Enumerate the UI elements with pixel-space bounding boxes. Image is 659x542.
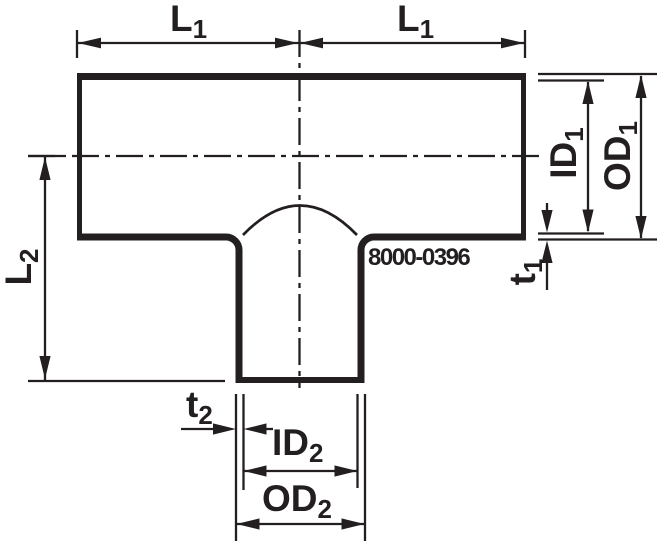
arrowhead-up	[39, 157, 50, 180]
arrowhead-right	[342, 518, 365, 529]
dimension-l1-right: L1	[299, 0, 525, 58]
label-l1-left: L1	[170, 0, 207, 44]
tee-fitting-outline	[77, 73, 526, 380]
arrowhead-left	[244, 423, 267, 434]
arrowhead-right	[501, 38, 524, 49]
arrowhead-right	[275, 38, 298, 49]
arrowhead-down	[582, 210, 593, 233]
label-od2: OD2	[262, 478, 332, 524]
label-t2: t2	[186, 384, 213, 430]
dimension-od2: OD2	[237, 478, 365, 530]
run-pipe-bottom-left-edge-branch-left-wall	[77, 237, 239, 379]
arrowhead-down	[39, 356, 50, 379]
part-number: 8000-0396	[368, 244, 470, 271]
label-id1: ID1	[543, 127, 589, 178]
arrowhead-down	[541, 210, 552, 233]
label-t1: t1	[502, 259, 548, 286]
dimension-t1: t1	[502, 203, 553, 290]
label-l2: L2	[0, 248, 44, 285]
arrowhead-left	[244, 465, 267, 476]
arrowhead-left	[237, 518, 260, 529]
label-id2: ID2	[272, 422, 323, 468]
arrowhead-right	[213, 423, 236, 434]
centerlines	[28, 30, 543, 388]
arrowhead-down	[635, 216, 646, 239]
label-od1: OD1	[597, 121, 643, 191]
arrowhead-up	[582, 81, 593, 104]
drawing-canvas: L1 L1 L2 ID1	[0, 0, 659, 542]
dimension-l1-left: L1	[77, 0, 299, 58]
arrowhead-up	[635, 75, 646, 98]
label-l1-right: L1	[397, 0, 434, 44]
dimension-l2: L2	[0, 156, 225, 381]
arrowhead-left	[78, 38, 101, 49]
arrowhead-left	[300, 38, 323, 49]
arrowhead-right	[335, 465, 358, 476]
dimension-t2: t2	[181, 384, 273, 435]
technical-drawing-page: L1 L1 L2 ID1	[0, 0, 659, 542]
